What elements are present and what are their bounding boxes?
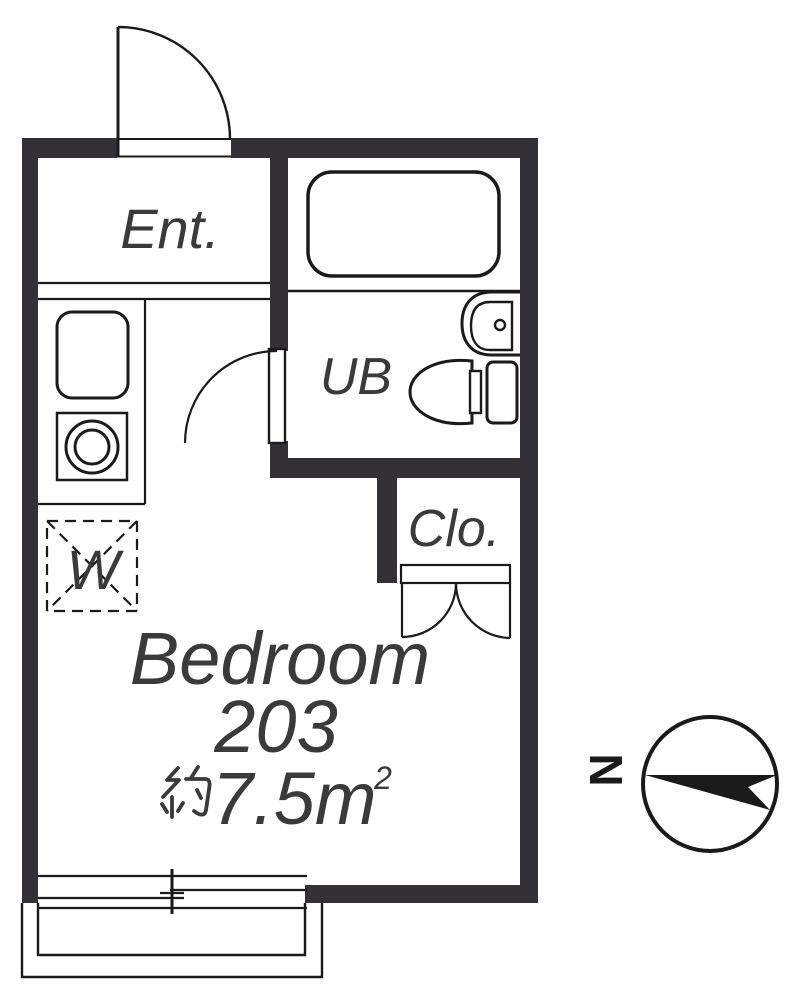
floor-plan-page: N Ent. UB Clo. W Bedroom 203 7.5m 2 約 bbox=[0, 0, 796, 1000]
compass: N bbox=[580, 717, 777, 851]
wall-right bbox=[520, 138, 538, 903]
wall-ub-bottom bbox=[272, 458, 538, 478]
balcony-outer-rail bbox=[22, 903, 322, 977]
washer-label: W bbox=[67, 538, 125, 601]
closet-door-arc-right bbox=[456, 583, 510, 638]
ub-door-swing-arc bbox=[185, 351, 277, 443]
wall-divider-upper bbox=[270, 158, 288, 351]
floor-plan-drawing: N Ent. UB Clo. W Bedroom 203 7.5m 2 約 bbox=[0, 0, 796, 1000]
closet-door-frame bbox=[401, 565, 510, 583]
wall-bottom bbox=[305, 885, 538, 903]
bedroom-area-superscript: 2 bbox=[373, 760, 392, 796]
entrance-door-swing-arc bbox=[118, 27, 230, 139]
closet-label: Clo. bbox=[408, 500, 500, 558]
ub-door-leaf bbox=[269, 349, 285, 443]
toilet-bowl bbox=[410, 360, 472, 423]
toilet-seat-hinge bbox=[470, 371, 481, 413]
bedroom-area-figure: 7.5m bbox=[212, 757, 377, 840]
entrance-label: Ent. bbox=[120, 197, 220, 260]
wall-top bbox=[22, 138, 538, 158]
kitchen-sink bbox=[57, 312, 128, 398]
bathtub bbox=[308, 172, 499, 276]
bedroom-unit-number: 203 bbox=[213, 685, 337, 768]
bedroom-area-kanji-text: 約 bbox=[147, 753, 228, 836]
wall-closet-left bbox=[377, 478, 397, 583]
toilet-tank bbox=[487, 362, 517, 423]
unit-bath-label: UB bbox=[320, 348, 392, 406]
wall-left bbox=[22, 138, 38, 903]
compass-north-label: N bbox=[580, 753, 632, 786]
